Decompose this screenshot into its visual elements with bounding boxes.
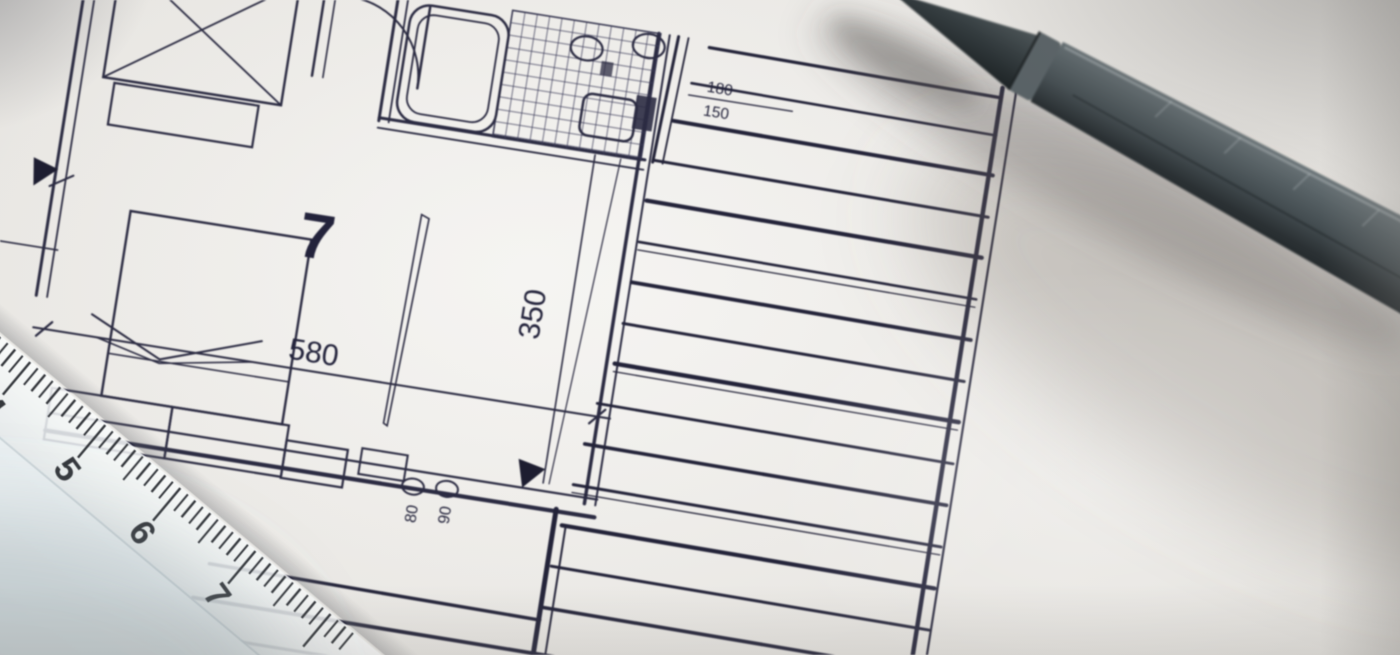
ruler-layer: 4 5 6 7 [0,0,1400,655]
photo-scene: 7 580 350 180 150 80 90 [0,0,1400,655]
